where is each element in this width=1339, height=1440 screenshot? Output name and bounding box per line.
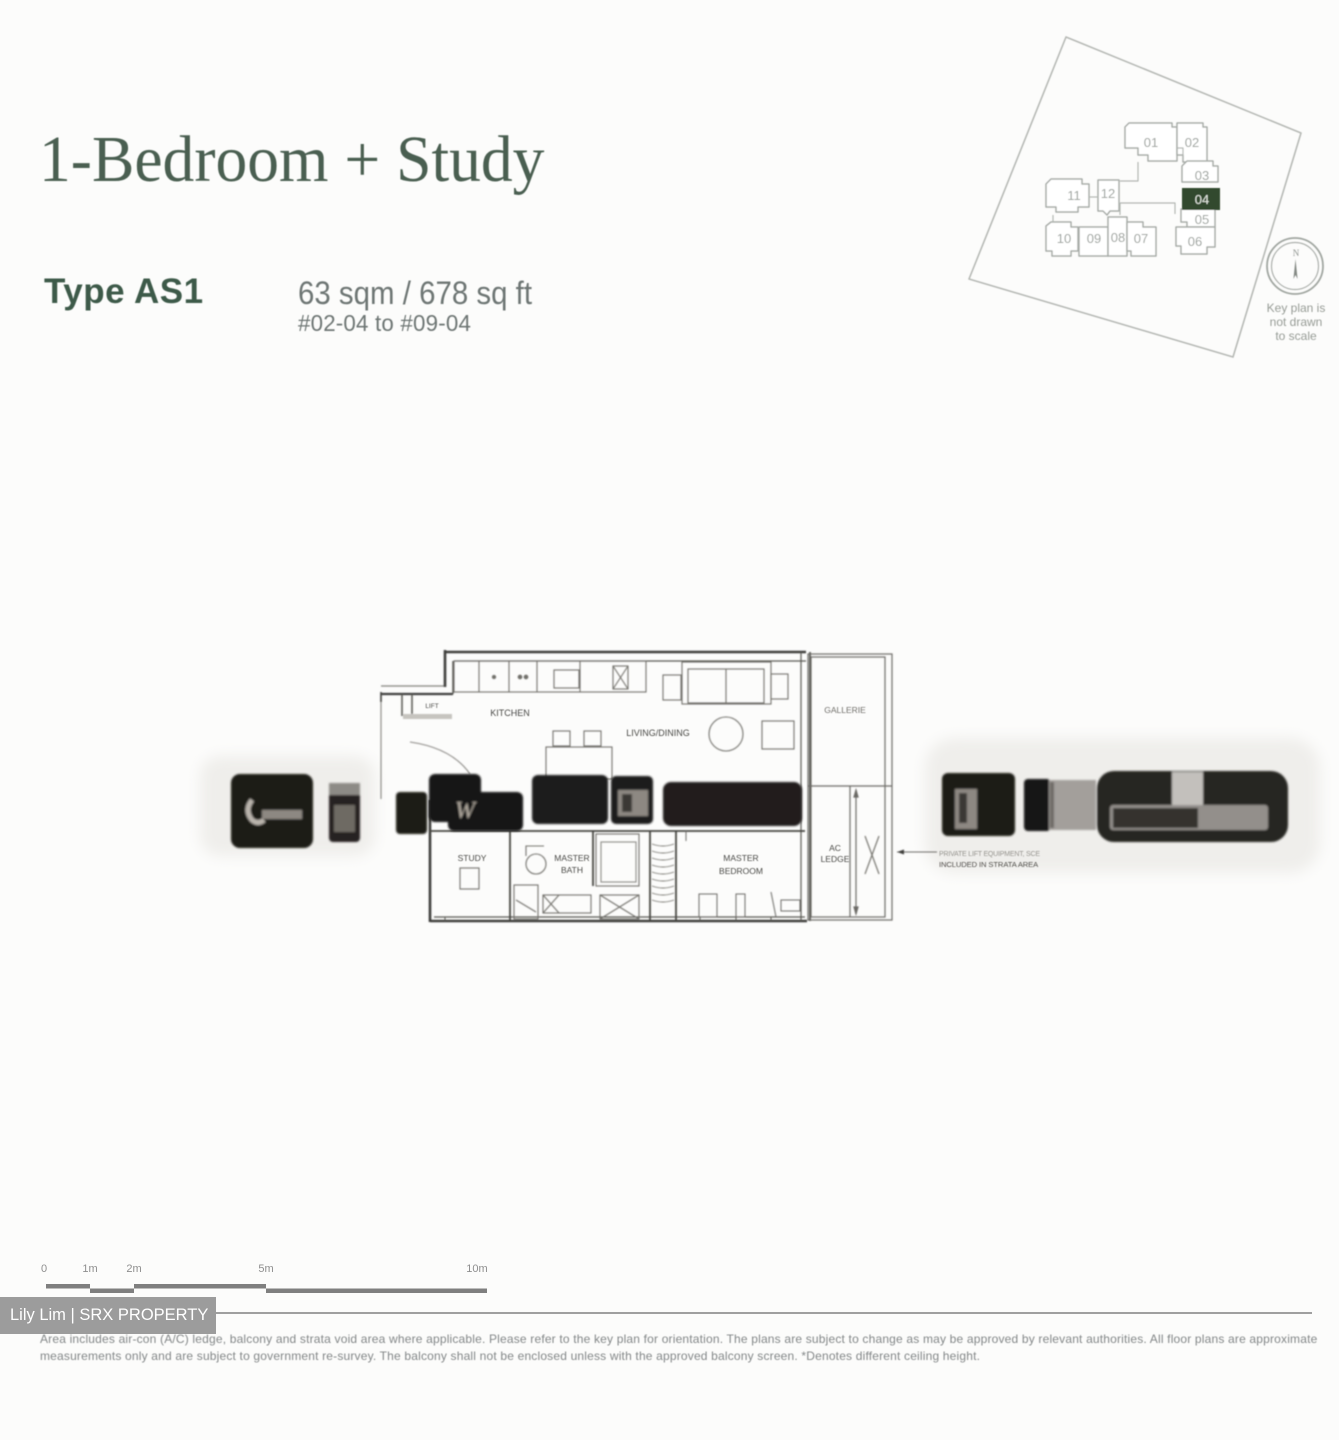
svg-text:MASTER: MASTER [554, 853, 589, 863]
svg-text:06: 06 [1188, 234, 1202, 249]
svg-text:01: 01 [1144, 135, 1158, 150]
svg-text:N: N [1293, 248, 1300, 258]
svg-text:LEDGE: LEDGE [821, 854, 850, 864]
svg-text:04: 04 [1195, 192, 1209, 207]
svg-text:MASTER: MASTER [723, 853, 758, 863]
svg-text:05: 05 [1195, 212, 1209, 227]
svg-text:10: 10 [1057, 231, 1071, 246]
svg-text:not drawn: not drawn [1270, 315, 1323, 329]
svg-text:2m: 2m [126, 1263, 141, 1275]
svg-text:GALLERIE: GALLERIE [824, 705, 866, 715]
svg-text:W: W [455, 798, 477, 824]
svg-text:BEDROOM: BEDROOM [719, 866, 763, 876]
svg-text:10m: 10m [466, 1263, 487, 1275]
svg-text:INCLUDED IN STRATA AREA: INCLUDED IN STRATA AREA [939, 860, 1039, 869]
svg-text:03: 03 [1195, 168, 1209, 183]
svg-text:PRIVATE LIFT EQUIPMENT, SCE: PRIVATE LIFT EQUIPMENT, SCE [939, 851, 1040, 858]
svg-text:12: 12 [1101, 186, 1115, 201]
svg-text:LIVING/DINING: LIVING/DINING [626, 728, 690, 738]
svg-text:11: 11 [1067, 188, 1081, 203]
svg-text:5m: 5m [258, 1263, 273, 1275]
svg-text:08: 08 [1111, 230, 1125, 245]
svg-text:0: 0 [41, 1263, 47, 1275]
svg-text:09: 09 [1087, 231, 1101, 246]
svg-text:STUDY: STUDY [458, 853, 487, 863]
svg-text:to scale: to scale [1275, 329, 1317, 343]
svg-text:07: 07 [1134, 231, 1148, 246]
svg-text:BATH: BATH [561, 865, 583, 875]
svg-text:LIFT: LIFT [425, 703, 438, 710]
svg-text:02: 02 [1185, 135, 1199, 150]
svg-text:KITCHEN: KITCHEN [490, 708, 530, 718]
svg-text:Key plan is: Key plan is [1267, 301, 1326, 315]
svg-text:1m: 1m [82, 1263, 97, 1275]
svg-text:AC: AC [829, 843, 841, 853]
